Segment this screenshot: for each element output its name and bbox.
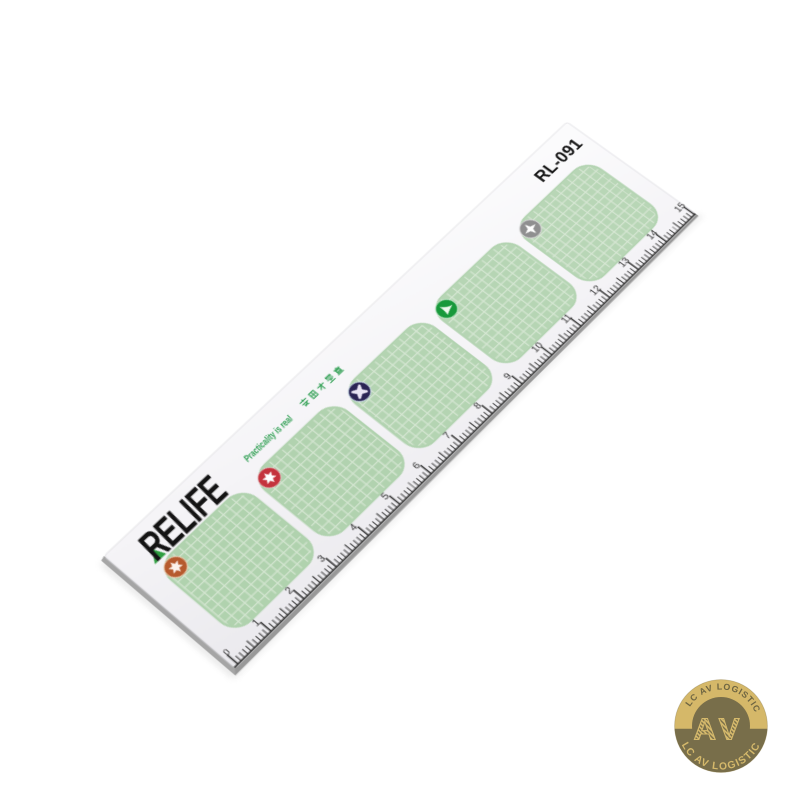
svg-text:AV: AV — [694, 712, 745, 747]
